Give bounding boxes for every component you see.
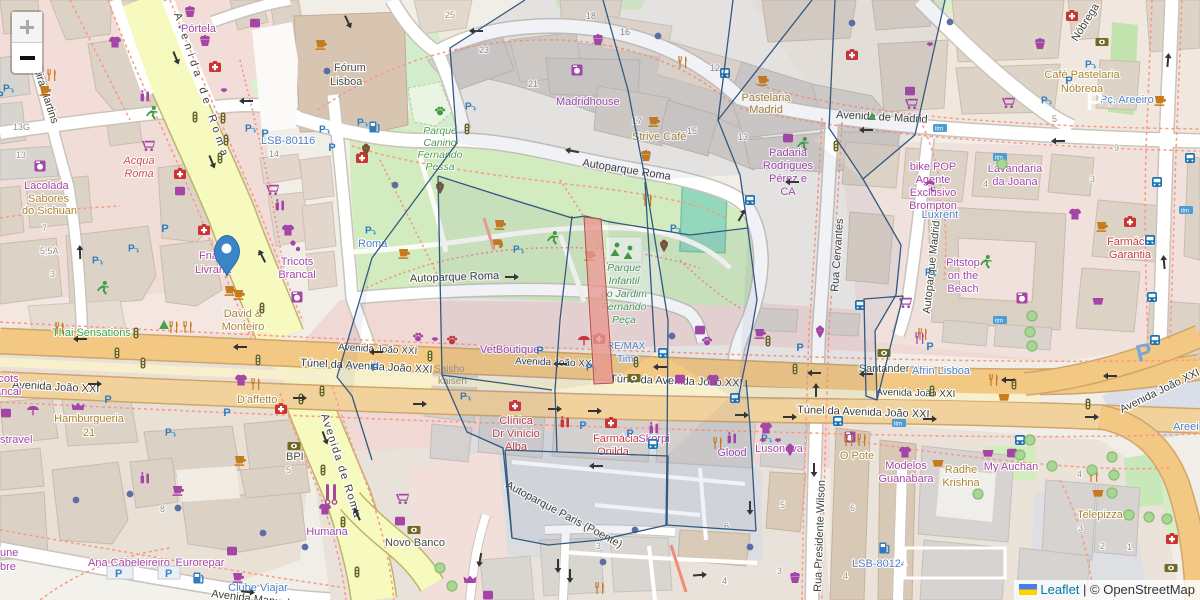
- svg-text:5,5A: 5,5A: [40, 246, 59, 256]
- svg-text:3: 3: [596, 541, 601, 551]
- svg-text:LSB-80124: LSB-80124: [852, 558, 907, 570]
- svg-text:P: P: [115, 568, 122, 580]
- svg-text:4: 4: [722, 576, 727, 586]
- svg-text:3: 3: [50, 269, 55, 279]
- svg-text:Brompton: Brompton: [909, 200, 957, 212]
- svg-text:Tricots: Tricots: [0, 373, 19, 385]
- svg-text:Sabores: Sabores: [28, 193, 69, 205]
- svg-text:Guanabara: Guanabara: [878, 473, 934, 485]
- svg-text:O Pote: O Pote: [840, 450, 874, 462]
- svg-text:P: P: [1086, 86, 1103, 116]
- svg-text:Areei: Areei: [1173, 421, 1199, 433]
- svg-text:Pitstop: Pitstop: [946, 257, 980, 269]
- svg-text:bike POP: bike POP: [910, 161, 956, 173]
- svg-text:Fórum: Fórum: [334, 62, 366, 74]
- svg-text:4: 4: [843, 571, 848, 581]
- svg-text:5: 5: [780, 500, 785, 510]
- svg-text:1: 1: [1127, 542, 1132, 552]
- svg-text:Lusonova: Lusonova: [755, 443, 804, 455]
- svg-text:P: P: [165, 568, 172, 580]
- svg-text:3: 3: [777, 566, 782, 576]
- svg-text:da Joana: da Joana: [992, 176, 1038, 188]
- svg-text:Radhe: Radhe: [945, 464, 977, 476]
- svg-text:13: 13: [16, 150, 26, 160]
- svg-text:8: 8: [160, 504, 165, 514]
- svg-text:5: 5: [286, 465, 291, 475]
- svg-text:Beach: Beach: [947, 283, 978, 295]
- svg-text:3: 3: [1078, 523, 1083, 533]
- svg-text:Brancal: Brancal: [278, 269, 315, 281]
- svg-text:Roma: Roma: [124, 168, 153, 180]
- svg-text:Afrin Lisboa: Afrin Lisboa: [912, 365, 971, 377]
- svg-text:Café Pastelaria: Café Pastelaria: [1044, 69, 1120, 81]
- svg-text:Clube Viajar: Clube Viajar: [228, 582, 288, 594]
- svg-text:14: 14: [269, 149, 279, 159]
- svg-text:7: 7: [42, 223, 47, 233]
- svg-text:13G: 13G: [13, 122, 30, 132]
- svg-text:Monteiro: Monteiro: [222, 321, 265, 333]
- svg-text:on the: on the: [948, 270, 979, 282]
- svg-text:LSB-80116: LSB-80116: [261, 135, 315, 147]
- svg-text:Krishna: Krishna: [942, 477, 980, 489]
- svg-text:9: 9: [1114, 143, 1119, 153]
- svg-text:do Sichuan: do Sichuan: [22, 205, 77, 217]
- svg-text:Telepizza: Telepizza: [1077, 509, 1124, 521]
- svg-text:Fernando: Fernando: [418, 149, 463, 161]
- svg-text:Pessa: Pessa: [425, 161, 454, 173]
- svg-text:Pórtela: Pórtela: [181, 23, 217, 35]
- svg-text:Pç. Areeiro: Pç. Areeiro: [1100, 94, 1154, 106]
- svg-text:3: 3: [1090, 174, 1095, 184]
- svg-text:6: 6: [850, 503, 855, 513]
- svg-text:Modelos: Modelos: [885, 460, 927, 472]
- svg-text:Tricots: Tricots: [281, 256, 314, 268]
- svg-text:bre: bre: [0, 561, 16, 573]
- svg-text:Brancal: Brancal: [0, 386, 21, 398]
- svg-text:Thai Sensations: Thai Sensations: [52, 327, 131, 339]
- svg-text:25: 25: [445, 10, 455, 20]
- svg-text:David &: David &: [224, 308, 263, 320]
- svg-text:Acqua: Acqua: [122, 155, 154, 167]
- svg-text:Eurorepar: Eurorepar: [176, 557, 225, 569]
- svg-text:21: 21: [83, 427, 95, 439]
- svg-text:2: 2: [1100, 541, 1105, 551]
- svg-text:Garantia: Garantia: [1109, 249, 1152, 261]
- svg-text:une: une: [0, 547, 18, 559]
- svg-text:My Auchan: My Auchan: [984, 461, 1038, 473]
- svg-text:Lacolada: Lacolada: [24, 180, 70, 192]
- svg-text:4: 4: [983, 179, 988, 189]
- svg-text:D'affetto: D'affetto: [237, 394, 277, 406]
- svg-text:Canino: Canino: [423, 137, 456, 149]
- svg-text:Humana: Humana: [306, 526, 348, 538]
- svg-text:Lisboa: Lisboa: [330, 76, 363, 88]
- svg-text:stravel: stravel: [0, 434, 32, 446]
- svg-text:Hamburgueria: Hamburgueria: [54, 413, 125, 425]
- svg-text:Avenida João XXI: Avenida João XXI: [876, 387, 956, 400]
- svg-text:Parque: Parque: [423, 125, 457, 137]
- svg-text:4: 4: [1077, 469, 1082, 479]
- svg-text:Novo Banco: Novo Banco: [385, 537, 445, 549]
- svg-text:BPI: BPI: [286, 451, 304, 463]
- svg-text:Roma: Roma: [358, 238, 388, 250]
- svg-text:5: 5: [1052, 114, 1057, 124]
- svg-text:Lavandaria: Lavandaria: [988, 163, 1043, 175]
